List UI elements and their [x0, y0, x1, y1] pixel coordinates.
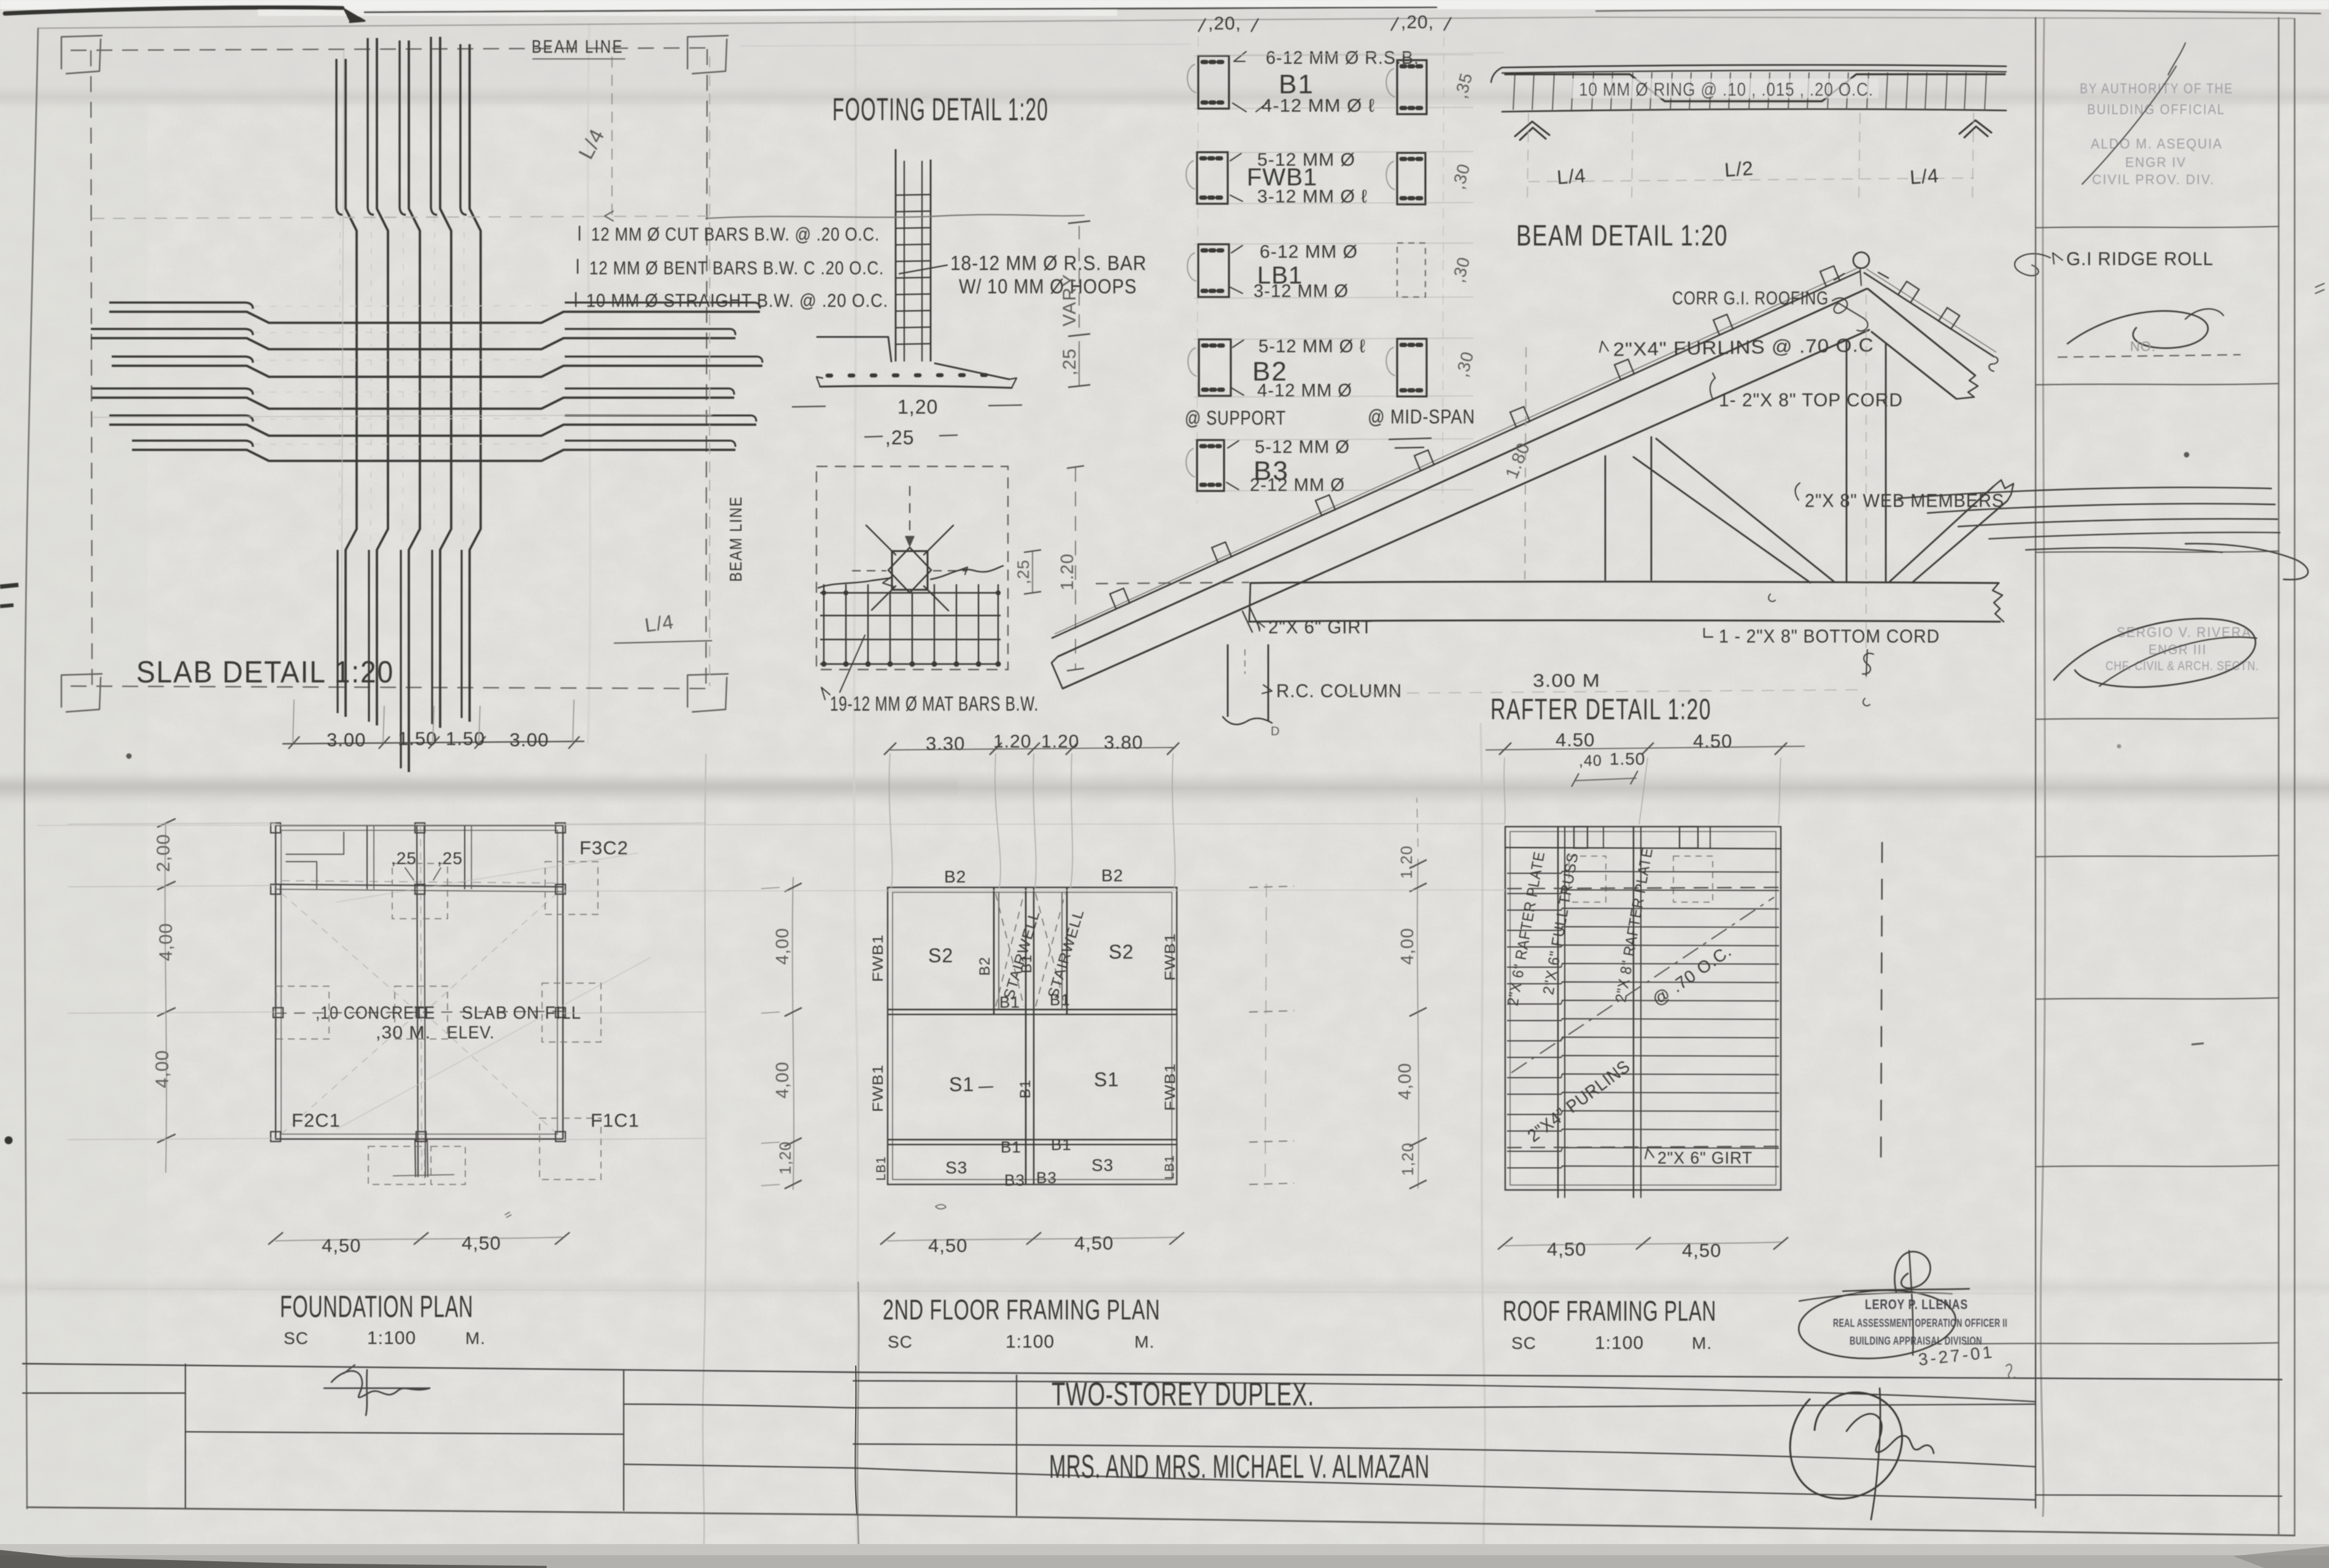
svg-text:3.30: 3.30: [926, 733, 965, 754]
svg-text:TWO-STOREY DUPLEX.: TWO-STOREY DUPLEX.: [1052, 1376, 1314, 1413]
svg-text:S2: S2: [1109, 941, 1134, 963]
svg-text:1:100: 1:100: [1006, 1332, 1055, 1352]
svg-text:B3: B3: [1004, 1171, 1025, 1189]
svg-text:1:100: 1:100: [367, 1328, 416, 1348]
svg-text:B1: B1: [1001, 1138, 1021, 1156]
svg-text:3-12 MM Ø ℓ: 3-12 MM Ø ℓ: [1257, 187, 1368, 207]
svg-text:,25: ,25: [437, 849, 463, 868]
svg-text:B1: B1: [999, 993, 1020, 1011]
svg-text:4,50: 4,50: [1682, 1240, 1721, 1261]
svg-text:,10 CONCRETE: ,10 CONCRETE: [316, 1003, 435, 1023]
svg-text:1.50: 1.50: [1610, 749, 1646, 768]
svg-text:CIVIL PROV. DIV.: CIVIL PROV. DIV.: [2092, 172, 2215, 187]
svg-text:1- 2"X 8" TOP CORD: 1- 2"X 8" TOP CORD: [1719, 389, 1903, 411]
svg-text:5-12 MM Ø: 5-12 MM Ø: [1255, 437, 1350, 457]
svg-text:G.I RIDGE ROLL: G.I RIDGE ROLL: [2066, 248, 2214, 269]
svg-text:BEAM LINE: BEAM LINE: [726, 496, 745, 582]
svg-text:19-12 MM Ø MAT BARS B.W.: 19-12 MM Ø MAT BARS B.W.: [830, 692, 1039, 715]
svg-text:SC: SC: [1511, 1334, 1537, 1353]
svg-text:MRS. AND MRS. MICHAEL V. A: MRS. AND MRS. MICHAEL V. ALMAZAN: [1049, 1448, 1430, 1485]
svg-text:S1: S1: [1094, 1068, 1119, 1091]
svg-text:2"X 6" GIRT: 2"X 6" GIRT: [1268, 616, 1373, 638]
svg-text:SC: SC: [284, 1329, 309, 1348]
svg-text:FWB1: FWB1: [1162, 933, 1179, 981]
svg-text:3.00 M: 3.00 M: [1533, 671, 1600, 691]
svg-text:4.50: 4.50: [1693, 730, 1732, 752]
svg-text:BEAM LINE: BEAM LINE: [532, 37, 624, 57]
svg-text:W/ 10 MM Ø HOOPS: W/ 10 MM Ø HOOPS: [959, 275, 1137, 298]
svg-text:3.80: 3.80: [1104, 732, 1143, 753]
svg-text:LB1: LB1: [1163, 1155, 1177, 1180]
svg-text:,25: ,25: [885, 427, 914, 449]
svg-text:LB1: LB1: [874, 1156, 888, 1181]
svg-text:1,20: 1,20: [897, 396, 938, 418]
svg-text:BEAM DETAIL 1:20: BEAM DETAIL 1:20: [1516, 220, 1728, 252]
svg-text:4,00: 4,00: [773, 1062, 792, 1099]
svg-text:F1C1: F1C1: [591, 1110, 640, 1131]
svg-text:,25: ,25: [1060, 348, 1080, 376]
svg-text:,25: ,25: [1014, 559, 1033, 584]
svg-text:ELEV.: ELEV.: [447, 1023, 495, 1043]
svg-text:L/4: L/4: [1556, 164, 1587, 188]
svg-text:F3C2: F3C2: [579, 837, 629, 859]
svg-text:4,50: 4,50: [322, 1235, 361, 1256]
svg-text:FOUNDATION PLAN: FOUNDATION PLAN: [280, 1289, 473, 1324]
svg-text:4,50: 4,50: [928, 1235, 967, 1256]
svg-text:1,20: 1,20: [1398, 1142, 1417, 1176]
svg-text:2ND FLOOR FRAMING PLAN: 2ND FLOOR FRAMING PLAN: [883, 1294, 1160, 1326]
svg-text:,20,: ,20,: [1208, 14, 1241, 34]
svg-text:M.: M.: [1134, 1332, 1155, 1351]
svg-text:1.20: 1.20: [1058, 554, 1077, 590]
svg-text:F2C1: F2C1: [292, 1110, 341, 1131]
svg-text:ALDO M. ASEQUIA: ALDO M. ASEQUIA: [2091, 136, 2223, 152]
svg-text:ENGR IV: ENGR IV: [2125, 155, 2187, 170]
svg-text:4,50: 4,50: [1074, 1232, 1114, 1254]
svg-text:S3: S3: [945, 1158, 967, 1177]
svg-text:1,20: 1,20: [776, 1141, 794, 1175]
svg-text:2"X4" FURLINS @ .70 O.C: 2"X4" FURLINS @ .70 O.C: [1613, 334, 1875, 360]
svg-text:B3: B3: [1036, 1168, 1057, 1187]
svg-text:1.20: 1.20: [1041, 732, 1079, 752]
svg-text:1:100: 1:100: [1595, 1333, 1644, 1353]
svg-text:1.50: 1.50: [398, 728, 437, 749]
svg-text:FWB1: FWB1: [870, 1064, 886, 1112]
svg-text:M.: M.: [465, 1329, 486, 1348]
svg-text:L/4: L/4: [1909, 164, 1940, 188]
svg-text:SC: SC: [888, 1332, 913, 1351]
svg-text:B1: B1: [1051, 1135, 1072, 1154]
svg-text:2-12 MM Ø: 2-12 MM Ø: [1250, 475, 1345, 495]
svg-text:B1: B1: [1279, 69, 1314, 99]
svg-text:12 MM Ø CUT BARS B.W. @ .2: 12 MM Ø CUT BARS B.W. @ .20 O.C.: [591, 223, 880, 245]
svg-text:,25: ,25: [391, 849, 417, 868]
svg-text:L/2: L/2: [1724, 157, 1754, 181]
svg-text:B2: B2: [977, 957, 993, 976]
svg-text:3-12 MM Ø: 3-12 MM Ø: [1254, 281, 1349, 301]
svg-text:FWB1: FWB1: [870, 934, 886, 982]
svg-text:FOOTING DETAIL 1:20: FOOTING DETAIL 1:20: [832, 92, 1048, 128]
svg-text:R.C. COLUMN: R.C. COLUMN: [1276, 680, 1402, 701]
svg-text:BUILDING OFFICIAL: BUILDING OFFICIAL: [2087, 101, 2225, 117]
svg-text:4-12 MM Ø ℓ: 4-12 MM Ø ℓ: [1261, 96, 1375, 116]
svg-text:VARY: VARY: [1060, 273, 1080, 326]
svg-text:S3: S3: [1091, 1156, 1114, 1175]
svg-text:4.50: 4.50: [1556, 729, 1595, 751]
svg-text:1.20: 1.20: [993, 732, 1031, 752]
svg-text:L/4: L/4: [643, 611, 675, 636]
svg-text:4,00: 4,00: [1395, 1063, 1415, 1100]
svg-text:3.00: 3.00: [510, 729, 549, 751]
svg-text:SLAB DETAIL 1:20: SLAB DETAIL 1:20: [136, 655, 394, 689]
svg-text:B1: B1: [1050, 991, 1071, 1009]
svg-text:M.: M.: [1692, 1334, 1712, 1353]
svg-text:ROOF FRAMING PLAN: ROOF FRAMING PLAN: [1503, 1295, 1716, 1327]
svg-text:D: D: [1271, 725, 1280, 738]
svg-text:,30 M.: ,30 M.: [376, 1023, 431, 1043]
svg-text:FWB1: FWB1: [1162, 1063, 1179, 1111]
svg-text:,20,: ,20,: [1401, 12, 1434, 33]
svg-text:6-12 MM Ø: 6-12 MM Ø: [1260, 242, 1358, 262]
svg-text:BY AUTHORITY OF THE: BY AUTHORITY OF THE: [2080, 80, 2233, 96]
svg-text:@ MID-SPAN: @ MID-SPAN: [1368, 406, 1475, 428]
svg-text:5-12 MM Ø ℓ: 5-12 MM Ø ℓ: [1258, 336, 1366, 357]
svg-text:4,50: 4,50: [462, 1232, 501, 1254]
svg-text:2"X 6" GIRT: 2"X 6" GIRT: [1657, 1148, 1753, 1167]
svg-text:1,20: 1,20: [1397, 845, 1416, 879]
svg-text:18-12 MM Ø R.S. BAR: 18-12 MM Ø R.S. BAR: [950, 252, 1147, 274]
svg-text:10 MM Ø RING @ .10 , .015: 10 MM Ø RING @ .10 , .015 , .20 O.C.: [1579, 79, 1874, 100]
svg-text:4,00: 4,00: [773, 928, 792, 965]
svg-text:ENGR III: ENGR III: [2149, 642, 2207, 657]
svg-text:REAL ASSESSMENT OPERATION OFFI: REAL ASSESSMENT OPERATION OFFICER II: [1833, 1317, 2007, 1329]
svg-text:B2: B2: [1101, 866, 1123, 885]
svg-text:S1: S1: [949, 1073, 974, 1095]
svg-text:B2: B2: [944, 867, 966, 886]
svg-text:,40: ,40: [1579, 752, 1602, 770]
svg-text:RAFTER DETAIL 1:20: RAFTER DETAIL 1:20: [1490, 693, 1711, 726]
svg-text:4,00: 4,00: [1398, 928, 1417, 965]
svg-text:CORR G.I. ROOFING: CORR G.I. ROOFING: [1672, 287, 1829, 309]
svg-text:3.00: 3.00: [327, 729, 366, 751]
svg-text:S2: S2: [928, 944, 953, 967]
svg-text:2,00: 2,00: [153, 834, 174, 872]
svg-text:1 - 2"X 8" BOTTOM CORD: 1 - 2"X 8" BOTTOM CORD: [1719, 625, 1940, 647]
svg-text:12 MM Ø BENT BARS B.W. C .20: 12 MM Ø BENT BARS B.W. C .20 O.C.: [589, 257, 884, 279]
svg-text:4-12 MM Ø: 4-12 MM Ø: [1257, 380, 1352, 401]
svg-text:4,50: 4,50: [1547, 1238, 1586, 1260]
svg-text:10 MM Ø STRAIGHT B.W. @ .2: 10 MM Ø STRAIGHT B.W. @ .20 O.C.: [586, 290, 888, 311]
svg-text:4,00: 4,00: [152, 1050, 172, 1088]
svg-text:NO.: NO.: [2130, 339, 2156, 354]
svg-text:@ SUPPORT: @ SUPPORT: [1185, 407, 1286, 429]
svg-text:B1: B1: [1017, 1079, 1034, 1099]
svg-text:4,00: 4,00: [156, 923, 176, 961]
